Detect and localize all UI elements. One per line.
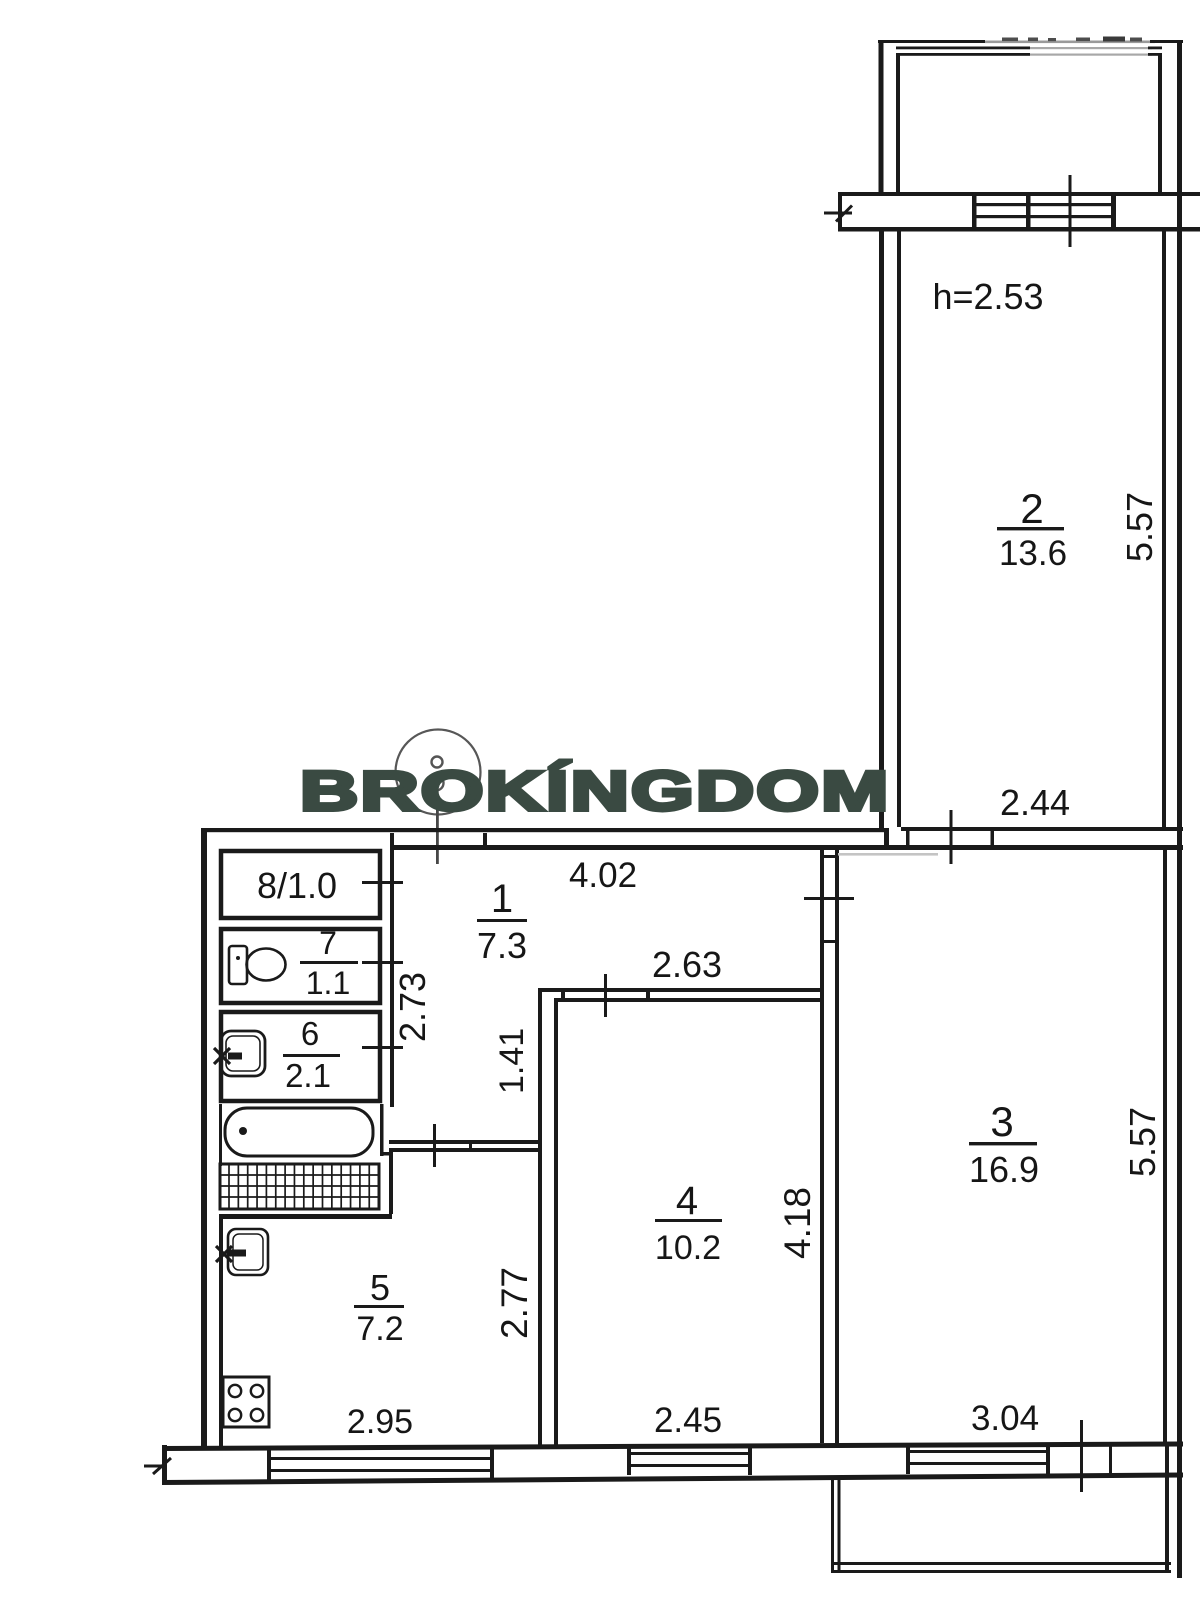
svg-text:4.18: 4.18 [777,1187,818,1259]
svg-text:13.6: 13.6 [999,534,1067,573]
svg-text:2.63: 2.63 [652,944,722,985]
svg-text:1.1: 1.1 [306,965,350,1001]
svg-text:1.41: 1.41 [493,1028,531,1094]
svg-text:6: 6 [301,1015,319,1052]
svg-text:2.95: 2.95 [347,1403,413,1441]
svg-text:10.2: 10.2 [655,1229,721,1267]
svg-text:BROKÍNGDOM: BROKÍNGDOM [300,759,890,822]
svg-text:2.77: 2.77 [494,1267,535,1339]
svg-text:2.45: 2.45 [654,1401,722,1440]
svg-text:2: 2 [1020,485,1043,532]
svg-text:2.44: 2.44 [1000,782,1070,823]
svg-text:4: 4 [676,1179,698,1223]
svg-text:2.73: 2.73 [392,972,433,1042]
svg-text:h=2.53: h=2.53 [932,276,1043,317]
svg-text:5: 5 [370,1267,390,1308]
svg-text:5.57: 5.57 [1119,492,1160,562]
svg-text:7: 7 [319,925,337,961]
svg-text:5.57: 5.57 [1122,1107,1163,1177]
svg-text:16.9: 16.9 [969,1149,1039,1190]
svg-text:4.02: 4.02 [569,856,637,895]
svg-text:7.3: 7.3 [477,925,527,966]
svg-text:7.2: 7.2 [356,1310,403,1348]
svg-text:2.1: 2.1 [285,1057,331,1094]
svg-text:3.04: 3.04 [971,1399,1039,1438]
svg-text:3: 3 [990,1098,1013,1145]
svg-text:1: 1 [491,877,513,921]
svg-text:8/1.0: 8/1.0 [257,865,337,906]
